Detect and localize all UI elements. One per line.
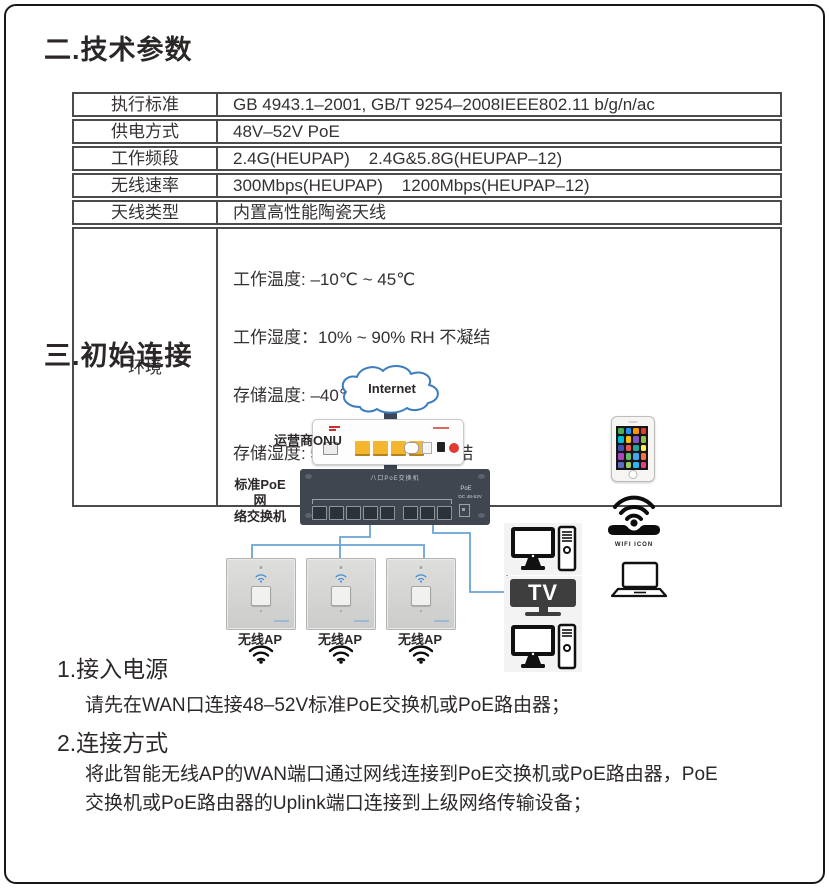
switch-panel-text: 八口PoE交换机 — [300, 473, 490, 482]
brand-mark — [434, 620, 449, 622]
step2-title: 2.连接方式 — [57, 724, 168, 758]
switch-dc-text: DC 48-52V — [453, 495, 487, 500]
desktop-computer-icon — [504, 622, 582, 672]
lan-port — [373, 441, 388, 456]
switch-label-line: 标准PoE网 — [228, 477, 292, 509]
step2-body-line: 将此智能无线AP的WAN端口通过网线连接到PoE交换机或PoE路由器，PoE — [85, 760, 801, 789]
section-tech-title: 二.技术参数 — [44, 28, 193, 67]
onu-power-port — [437, 442, 445, 452]
ethernet-port — [380, 506, 395, 520]
wireless-ap-device — [306, 558, 376, 630]
spec-value: 300Mbps(HEUPAP) 1200Mbps(HEUPAP–12) — [217, 173, 782, 198]
ap-wifi-icon — [414, 572, 428, 583]
led-dot — [260, 610, 262, 612]
brand-mark — [274, 620, 289, 622]
led-dot — [420, 566, 423, 569]
tv-icon: TV — [504, 576, 582, 622]
manual-page: 二.技术参数 执行标准 GB 4943.1–2001, GB/T 9254–20… — [0, 0, 829, 888]
poe-switch-device: 八口PoE交换机 PoE DC 48-52V — [300, 469, 490, 525]
step1-body: 请先在WAN口连接48–52V标准PoE交换机或PoE路由器； — [85, 691, 570, 720]
ap-wifi-icon — [254, 572, 268, 583]
switch-label-line: 络交换机 — [228, 509, 292, 525]
tv-label: TV — [510, 579, 576, 607]
spec-label: 无线速率 — [72, 173, 217, 198]
wireless-ap-device — [386, 558, 456, 630]
step1-title: 1.接入电源 — [57, 650, 168, 684]
wifi-icon-caption: WIFI ICON — [604, 542, 664, 548]
led-dot — [340, 610, 342, 612]
spec-value: 2.4G(HEUPAP) 2.4G&5.8G(HEUPAP–12) — [217, 146, 782, 171]
spec-value: 48V–52V PoE — [217, 119, 782, 144]
phone-home-button — [629, 470, 638, 479]
ethernet-port — [420, 506, 435, 520]
onu-print — [433, 427, 449, 429]
ethernet-port — [437, 506, 452, 520]
table-row: 天线类型 内置高性能陶瓷天线 — [72, 200, 782, 225]
ethernet-port — [312, 506, 327, 520]
spec-label: 执行标准 — [72, 92, 217, 117]
spec-label: 供电方式 — [72, 119, 217, 144]
onu-port — [422, 442, 432, 454]
switch-label: 标准PoE网 络交换机 — [228, 477, 292, 525]
spec-label: 工作频段 — [72, 146, 217, 171]
env-line: 工作湿度：10% ~ 90% RH 不凝结 — [233, 328, 780, 348]
wireless-ap-device — [226, 558, 296, 630]
internet-label: Internet — [368, 381, 416, 396]
spec-value: 内置高性能陶瓷天线 — [217, 200, 782, 225]
screw-hole — [305, 513, 312, 518]
env-line: 工作温度: –10℃ ~ 45℃ — [233, 270, 780, 290]
onu-usb-port — [404, 442, 419, 454]
wifi-signal-icon — [407, 643, 435, 664]
onu-logo-mark — [329, 426, 340, 428]
ap-button — [331, 586, 351, 606]
ethernet-port — [363, 506, 378, 520]
tv-stand-base — [525, 612, 561, 616]
ethernet-port — [403, 506, 418, 520]
ethernet-port — [329, 506, 344, 520]
onu-power-button — [449, 443, 459, 453]
table-row: 无线速率 300Mbps(HEUPAP) 1200Mbps(HEUPAP–12) — [72, 173, 782, 198]
table-row: 供电方式 48V–52V PoE — [72, 119, 782, 144]
port-group-bracket — [312, 499, 452, 504]
switch-poe-text: PoE — [451, 486, 481, 492]
section-connect-title: 三.初始连接 — [44, 334, 193, 373]
laptop-icon — [610, 561, 668, 601]
led-dot — [420, 610, 422, 612]
ap-wifi-icon — [334, 572, 348, 583]
port-gap — [397, 506, 401, 520]
brand-mark — [354, 620, 369, 622]
wifi-signal-icon — [327, 643, 355, 664]
smartphone-icon — [611, 416, 655, 482]
table-row: 工作频段 2.4G(HEUPAP) 2.4G&5.8G(HEUPAP–12) — [72, 146, 782, 171]
desktop-computer-icon — [504, 523, 582, 575]
spec-value: GB 4943.1–2001, GB/T 9254–2008IEEE802.11… — [217, 92, 782, 117]
lan-port — [355, 441, 370, 456]
led-dot — [260, 566, 263, 569]
led-dot — [340, 566, 343, 569]
step2-body-line: 交换机或PoE路由器的Uplink端口连接到上级网络传输设备； — [85, 789, 801, 818]
phone-speaker — [629, 421, 638, 423]
switch-power-port — [459, 504, 470, 517]
onu-label: 运营商ONU — [274, 430, 342, 449]
wifi-router-icon: WIFI ICON — [604, 490, 664, 548]
wifi-signal-icon — [247, 643, 275, 664]
ethernet-port — [346, 506, 361, 520]
step2-body: 将此智能无线AP的WAN端口通过网线连接到PoE交换机或PoE路由器，PoE 交… — [85, 760, 801, 818]
phone-app-grid — [616, 426, 648, 470]
table-row: 执行标准 GB 4943.1–2001, GB/T 9254–2008IEEE8… — [72, 92, 782, 117]
internet-cloud: Internet — [330, 361, 456, 415]
ap-button — [251, 586, 271, 606]
spec-label: 天线类型 — [72, 200, 217, 225]
screw-hole — [478, 513, 485, 518]
switch-ports — [312, 506, 452, 520]
ap-button — [411, 586, 431, 606]
